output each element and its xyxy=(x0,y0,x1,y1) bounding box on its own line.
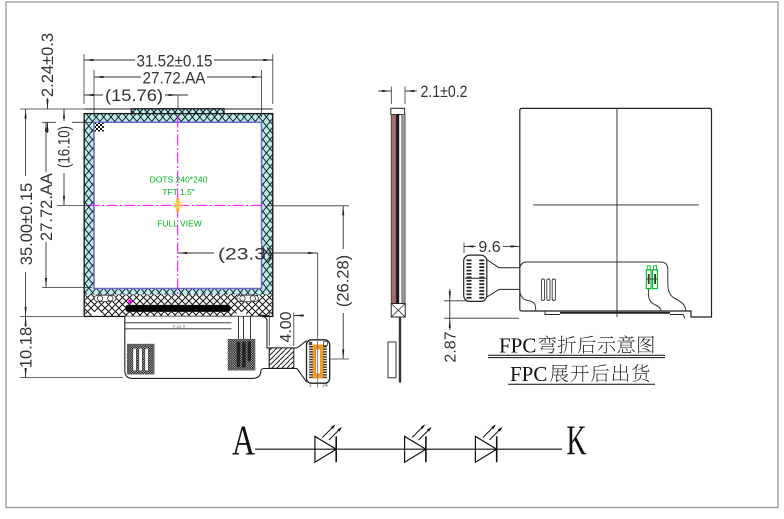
svg-text:(15.76): (15.76) xyxy=(105,87,163,105)
svg-text:TFT 1.5": TFT 1.5" xyxy=(162,187,195,197)
svg-text:2.87: 2.87 xyxy=(443,331,460,362)
svg-text:(23.3): (23.3) xyxy=(218,245,273,264)
svg-text:2.24±0.3: 2.24±0.3 xyxy=(39,33,57,97)
svg-text:31.52±0.15: 31.52±0.15 xyxy=(137,53,213,71)
svg-text:(16.10): (16.10) xyxy=(56,126,74,168)
svg-text:A: A xyxy=(232,419,255,465)
svg-text:24: 24 xyxy=(322,383,328,389)
svg-text:DOTS 240*240: DOTS 240*240 xyxy=(150,175,208,185)
svg-text:9.6: 9.6 xyxy=(478,239,500,256)
svg-text:FULL VIEW: FULL VIEW xyxy=(157,219,202,229)
svg-text:FPC: FPC xyxy=(499,334,536,358)
svg-text:# 24 #: # 24 # xyxy=(173,324,186,329)
svg-text:27.72.AA: 27.72.AA xyxy=(143,70,206,88)
svg-text:1: 1 xyxy=(309,383,312,389)
svg-text:4.00: 4.00 xyxy=(278,311,295,342)
svg-text:10.18: 10.18 xyxy=(18,327,36,368)
svg-text:35.00±0.15: 35.00±0.15 xyxy=(18,183,36,265)
svg-text:K: K xyxy=(567,419,587,465)
svg-text:27.72.AA: 27.72.AA xyxy=(38,173,56,241)
svg-text:FPC: FPC xyxy=(510,362,547,386)
svg-text:2.1±0.2: 2.1±0.2 xyxy=(421,83,468,101)
svg-text:(26.28): (26.28) xyxy=(335,255,353,307)
